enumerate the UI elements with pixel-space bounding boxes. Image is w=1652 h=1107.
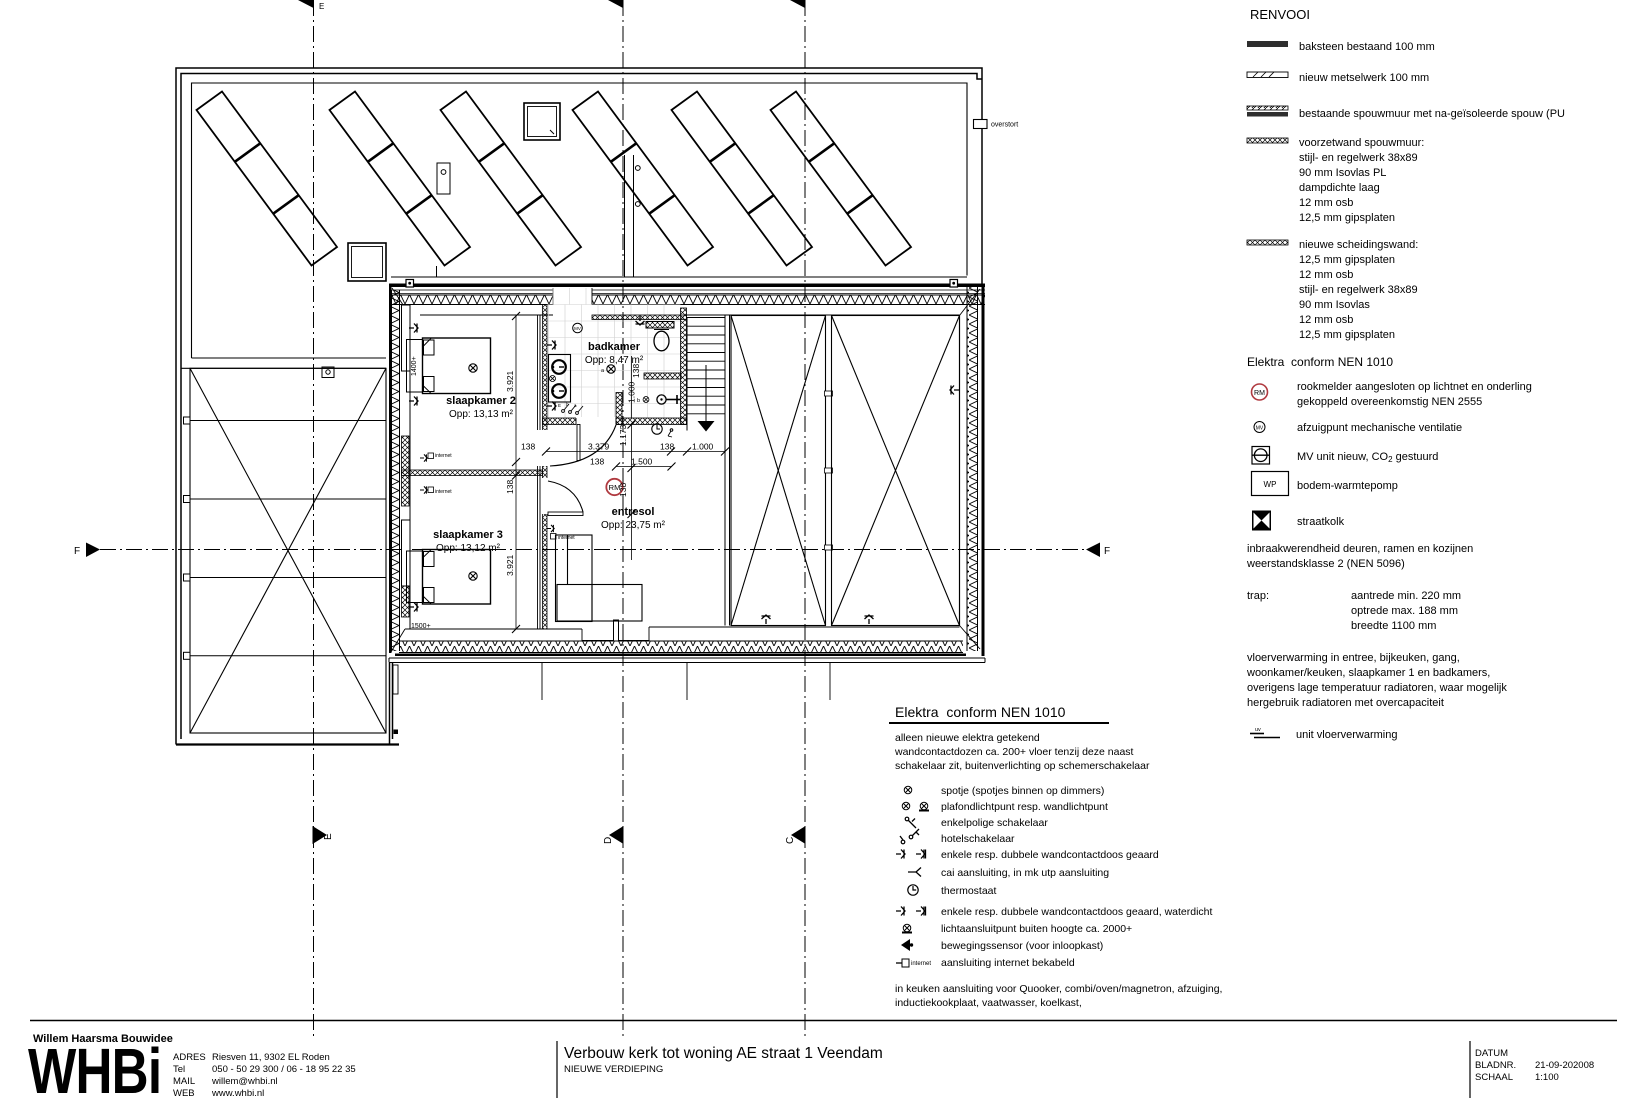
svg-text:1400+: 1400+ — [411, 356, 418, 376]
svg-text:3.921: 3.921 — [505, 370, 515, 392]
svg-text:MV unit nieuw, CO2 gestuurd: MV unit nieuw, CO2 gestuurd — [1297, 451, 1438, 464]
svg-text:1500+: 1500+ — [411, 623, 431, 630]
svg-text:MV: MV — [1256, 426, 1264, 432]
svg-text:Tel: Tel — [173, 1064, 185, 1075]
svg-text:enkelpolige schakelaar: enkelpolige schakelaar — [941, 817, 1048, 829]
svg-text:1.173: 1.173 — [618, 424, 628, 446]
svg-text:internet: internet — [911, 961, 931, 967]
svg-text:1.000: 1.000 — [692, 442, 714, 452]
svg-text:138: 138 — [631, 364, 641, 378]
svg-text:stijl- en regelwerk 38x89: stijl- en regelwerk 38x89 — [1299, 284, 1418, 296]
svg-text:E: E — [323, 833, 334, 840]
svg-text:slaapkamer 3: slaapkamer 3 — [433, 529, 503, 541]
svg-text:138: 138 — [660, 442, 674, 452]
svg-text:12 mm osb: 12 mm osb — [1299, 314, 1353, 326]
svg-text:www.whbi.nl: www.whbi.nl — [211, 1088, 264, 1099]
svg-text:C: C — [785, 837, 796, 844]
svg-text:overigens lage temperatuur rad: overigens lage temperatuur radiatoren, w… — [1247, 682, 1507, 694]
svg-text:1.500: 1.500 — [631, 457, 653, 467]
svg-text:enkele resp. dubbele wandconta: enkele resp. dubbele wandcontactdoos gea… — [941, 906, 1213, 918]
svg-text:Opp: 23,75 m²: Opp: 23,75 m² — [601, 520, 666, 531]
svg-text:optrede max. 188 mm: optrede max. 188 mm — [1351, 605, 1458, 617]
svg-text:slaapkamer 2: slaapkamer 2 — [446, 395, 516, 407]
svg-text:138: 138 — [590, 457, 604, 467]
svg-text:WHBi: WHBi — [28, 1037, 161, 1102]
svg-text:badkamer: badkamer — [588, 341, 641, 353]
svg-text:aansluiting internet bekabeld: aansluiting internet bekabeld — [941, 957, 1075, 969]
svg-text:138: 138 — [521, 442, 535, 452]
svg-text:Elektra conform NEN 1010: Elektra conform NEN 1010 — [1247, 355, 1393, 369]
svg-text:uv: uv — [1255, 727, 1261, 733]
svg-text:rookmelder aangesloten op lich: rookmelder aangesloten op lichtnet en on… — [1297, 381, 1532, 393]
svg-text:unit vloerverwarming: unit vloerverwarming — [1296, 729, 1397, 741]
svg-text:90 mm Isovlas: 90 mm Isovlas — [1299, 299, 1370, 311]
svg-text:b: b — [637, 398, 640, 404]
svg-text:RM: RM — [1254, 390, 1265, 397]
svg-text:21-09-202008: 21-09-202008 — [1535, 1060, 1594, 1071]
svg-text:Verbouw kerk tot woning AE str: Verbouw kerk tot woning AE straat 1 Veen… — [564, 1045, 883, 1062]
svg-text:hotelschakelaar: hotelschakelaar — [941, 833, 1015, 845]
svg-text:12,5 mm gipsplaten: 12,5 mm gipsplaten — [1299, 254, 1395, 266]
svg-text:BLADNR.: BLADNR. — [1475, 1060, 1516, 1071]
svg-text:bodem-warmtepomp: bodem-warmtepomp — [1297, 480, 1398, 492]
svg-text:Elektra conform NEN 1010: Elektra conform NEN 1010 — [895, 704, 1066, 720]
svg-text:WP: WP — [1264, 480, 1277, 489]
svg-text:MV: MV — [574, 326, 581, 331]
svg-text:hergebruik radiatoren met over: hergebruik radiatoren met overcapaciteit — [1247, 697, 1444, 709]
svg-text:voorzetwand spouwmuur:: voorzetwand spouwmuur: — [1299, 137, 1424, 149]
svg-text:1.000: 1.000 — [627, 381, 637, 403]
svg-text:nieuw metselwerk 100 mm: nieuw metselwerk 100 mm — [1299, 72, 1429, 84]
svg-text:wandcontactdozen ca. 200+ vloe: wandcontactdozen ca. 200+ vloer tenzij d… — [894, 746, 1134, 758]
svg-text:F: F — [1104, 546, 1110, 557]
svg-text:inbraakwerendheid deuren, rame: inbraakwerendheid deuren, ramen en kozij… — [1247, 543, 1473, 555]
svg-text:3.379: 3.379 — [588, 442, 610, 452]
svg-text:3.921: 3.921 — [505, 554, 515, 576]
svg-text:nieuwe scheidingswand:: nieuwe scheidingswand: — [1299, 239, 1418, 251]
svg-text:12,5 mm gipsplaten: 12,5 mm gipsplaten — [1299, 212, 1395, 224]
svg-text:trap:: trap: — [1247, 590, 1269, 602]
svg-text:overstort: overstort — [991, 122, 1018, 129]
svg-text:Riesven 11, 9302 EL Roden: Riesven 11, 9302 EL Roden — [212, 1052, 330, 1063]
svg-text:woonkamer/keuken, slaapkamer 1: woonkamer/keuken, slaapkamer 1 en badkam… — [1246, 667, 1490, 679]
svg-text:bestaande spouwmuur met na-geï: bestaande spouwmuur met na-geïsoleerde s… — [1299, 108, 1565, 120]
svg-text:enkele resp. dubbele wandconta: enkele resp. dubbele wandcontactdoos gea… — [941, 849, 1159, 861]
svg-text:stijl- en regelwerk 38x89: stijl- en regelwerk 38x89 — [1299, 152, 1418, 164]
svg-text:E: E — [558, 403, 561, 408]
svg-text:bewegingssensor (voor inloopka: bewegingssensor (voor inloopkast) — [941, 940, 1103, 952]
svg-text:MAIL: MAIL — [173, 1076, 195, 1087]
svg-text:D: D — [603, 837, 614, 844]
svg-text:90 mm Isovlas PL: 90 mm Isovlas PL — [1299, 167, 1386, 179]
svg-text:vloerverwarming in entree, bij: vloerverwarming in entree, bijkeuken, ga… — [1247, 652, 1460, 664]
svg-text:straatkolk: straatkolk — [1297, 516, 1345, 528]
svg-text:in keuken aansluiting voor Quo: in keuken aansluiting voor Quooker, comb… — [895, 983, 1222, 995]
svg-text:1:100: 1:100 — [1535, 1072, 1559, 1083]
svg-text:138: 138 — [505, 480, 515, 494]
svg-text:12 mm osb: 12 mm osb — [1299, 197, 1353, 209]
svg-text:ADRES: ADRES — [173, 1052, 206, 1063]
svg-text:WEB: WEB — [173, 1088, 195, 1099]
svg-text:050 - 50 29 300 / 06 - 18 95 2: 050 - 50 29 300 / 06 - 18 95 22 35 — [212, 1064, 356, 1075]
svg-text:F: F — [74, 546, 80, 557]
svg-text:alleen nieuwe elektra getekend: alleen nieuwe elektra getekend — [895, 732, 1040, 744]
svg-text:cai aansluiting, in mk utp aan: cai aansluiting, in mk utp aansluiting — [941, 867, 1109, 879]
svg-text:DATUM: DATUM — [1475, 1048, 1508, 1059]
svg-text:inductiekookplaat, vaatwasser,: inductiekookplaat, vaatwasser, koelkast, — [895, 997, 1082, 1009]
svg-text:SCHAAL: SCHAAL — [1475, 1072, 1513, 1083]
svg-text:baksteen bestaand 100 mm: baksteen bestaand 100 mm — [1299, 41, 1435, 53]
svg-text:gekoppeld overeenkomstig NEN 2: gekoppeld overeenkomstig NEN 2555 — [1297, 396, 1482, 408]
svg-text:internet: internet — [435, 453, 452, 459]
svg-text:12 mm osb: 12 mm osb — [1299, 269, 1353, 281]
svg-text:lichtaansluitpunt buiten hoogt: lichtaansluitpunt buiten hoogte ca. 2000… — [941, 923, 1132, 935]
svg-text:12,5 mm gipsplaten: 12,5 mm gipsplaten — [1299, 329, 1395, 341]
svg-text:RENVOOI: RENVOOI — [1250, 7, 1310, 22]
svg-text:138: 138 — [618, 483, 628, 497]
svg-text:plafondlichtpunt resp. wandlic: plafondlichtpunt resp. wandlichtpunt — [941, 801, 1108, 813]
svg-text:spotje (spotjes binnen op dimm: spotje (spotjes binnen op dimmers) — [941, 785, 1104, 797]
svg-text:schakelaar zit, buitenverlicht: schakelaar zit, buitenverlichting op sch… — [895, 760, 1150, 772]
svg-text:dampdichte laag: dampdichte laag — [1299, 182, 1380, 194]
svg-text:breedte 1100 mm: breedte 1100 mm — [1351, 620, 1436, 632]
svg-text:Opp: 13,13 m²: Opp: 13,13 m² — [449, 409, 514, 420]
svg-text:willem@whbi.nl: willem@whbi.nl — [211, 1076, 278, 1087]
svg-text:NIEUWE VERDIEPING: NIEUWE VERDIEPING — [564, 1064, 663, 1075]
svg-text:weerstandsklasse 2 (NEN 5096): weerstandsklasse 2 (NEN 5096) — [1246, 558, 1405, 570]
svg-text:internet: internet — [558, 535, 575, 541]
svg-text:internet: internet — [435, 489, 452, 495]
svg-text:afzuigpunt mechanische ventila: afzuigpunt mechanische ventilatie — [1297, 422, 1462, 434]
svg-text:aantrede min. 220 mm: aantrede min. 220 mm — [1351, 590, 1461, 602]
svg-text:E: E — [319, 2, 324, 11]
svg-text:thermostaat: thermostaat — [941, 885, 997, 897]
